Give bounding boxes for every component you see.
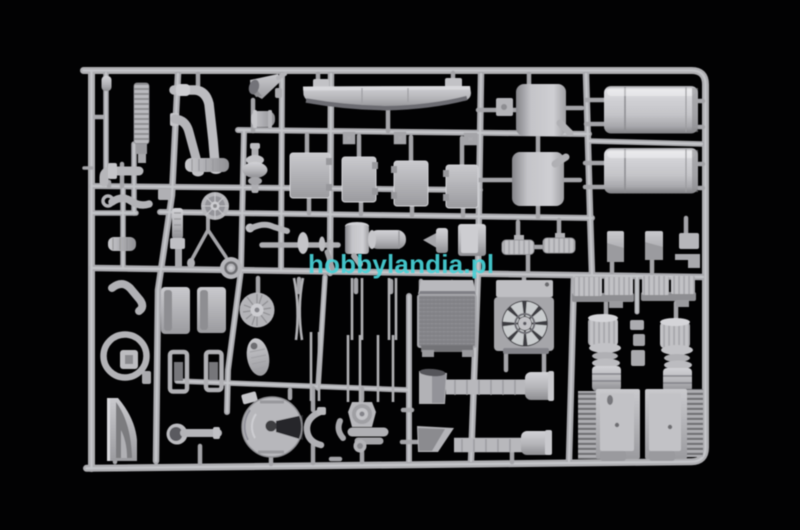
svg-text:hobbylandia.pl: hobbylandia.pl bbox=[308, 249, 494, 279]
